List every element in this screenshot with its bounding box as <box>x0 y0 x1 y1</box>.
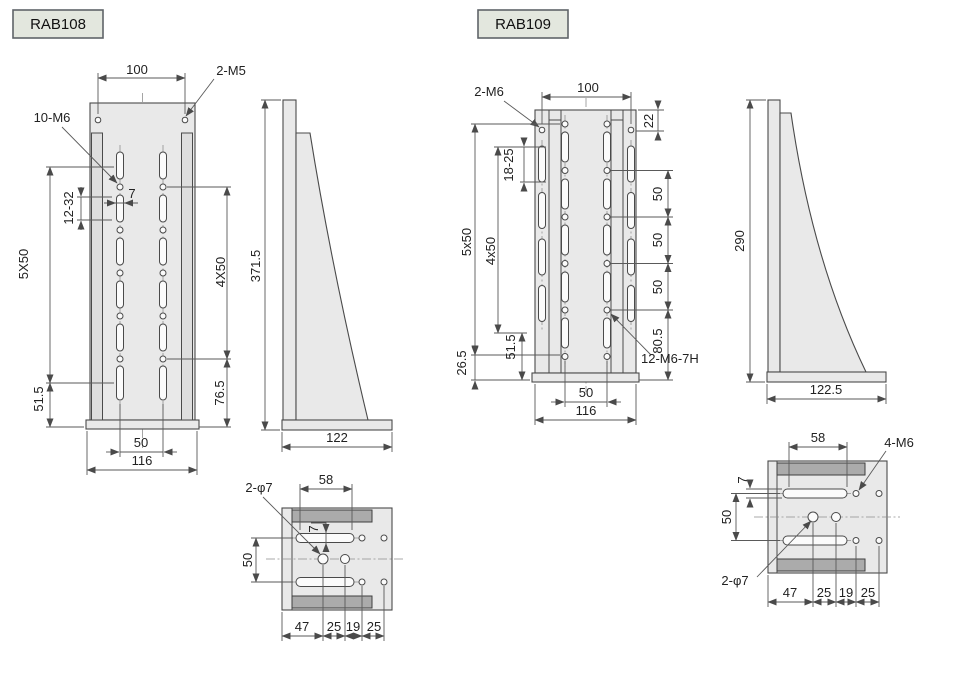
dim-47: 47 <box>295 619 309 634</box>
upright-section <box>777 463 865 475</box>
upright-plate <box>283 100 296 420</box>
dim-50: 50 <box>719 510 734 524</box>
dim-51-5-group: 51.5 <box>503 333 522 380</box>
front-plate <box>535 110 636 373</box>
dim-122-5-group: 122.5 <box>767 382 886 404</box>
rab109-bottom-view: 58 4-M6 7 50 2-φ7 <box>719 430 914 607</box>
dim-100: 100 <box>126 62 148 77</box>
m6-hole <box>876 491 882 497</box>
hole <box>381 579 387 585</box>
dim-58: 58 <box>811 430 825 445</box>
gusset <box>780 113 866 372</box>
slot <box>783 489 847 498</box>
dim-80-5: 80.5 <box>650 328 665 353</box>
dim-51-5-group: 51.5 <box>31 383 84 427</box>
rab108-bottom-view: 58 2-φ7 7 50 <box>240 472 404 641</box>
callout-2-m5: 2-M5 <box>216 63 246 78</box>
part-label-text: RAB109 <box>495 16 551 33</box>
dim-50: 50 <box>650 280 665 294</box>
rab109-panel: RAB109 <box>454 10 914 607</box>
upright-section <box>292 510 372 522</box>
dim-19: 19 <box>839 585 853 600</box>
dim-50: 50 <box>134 435 148 450</box>
callout-2-phi7: 2-φ7 <box>721 573 748 588</box>
dim-50: 50 <box>579 385 593 400</box>
gusset <box>296 133 368 420</box>
dim-76-5-group: 76.5 <box>199 359 231 427</box>
dim-25: 25 <box>367 619 381 634</box>
part-label-text: RAB108 <box>30 16 86 33</box>
rab108-side-view: 371.5 122 <box>248 100 392 452</box>
dim-25: 25 <box>861 585 875 600</box>
dim-4x50: 4X50 <box>213 257 228 287</box>
rab108-front-view: 100 2-M5 10-M6 12-32 7 <box>16 62 246 475</box>
dim-26-5: 26.5 <box>454 350 469 375</box>
m6-hole <box>853 491 859 497</box>
rab108-panel: RAB108 <box>13 10 404 641</box>
dim-22: 22 <box>641 114 656 128</box>
base-edge <box>86 420 199 429</box>
dim-50: 50 <box>650 187 665 201</box>
front-plate <box>90 103 195 420</box>
dim-290: 290 <box>732 230 747 252</box>
dim-7: 7 <box>306 525 321 532</box>
rib-section <box>777 559 865 571</box>
dim-51-5: 51.5 <box>31 386 46 411</box>
dim-19: 19 <box>346 619 360 634</box>
side-channel <box>182 133 193 420</box>
dim-116: 116 <box>132 453 153 468</box>
rab109-front-view: 2-M6 100 22 18-25 <box>454 80 699 425</box>
hole <box>359 579 365 585</box>
dim-371-5-group: 371.5 <box>248 100 281 430</box>
dim-58: 58 <box>319 472 333 487</box>
base-edge <box>532 373 639 382</box>
dim-12-32: 12-32 <box>61 191 76 224</box>
dim-50: 50 <box>240 553 255 567</box>
dim-7: 7 <box>735 476 750 483</box>
rab109-label: RAB109 <box>478 10 568 38</box>
slot <box>296 534 354 543</box>
hole <box>381 535 387 541</box>
catalog-drawing-page: RAB108 <box>0 0 953 678</box>
inner-left-column <box>562 121 569 360</box>
phi7-hole <box>808 512 818 522</box>
dim-22-group: 22 <box>636 101 664 140</box>
m6-hole <box>876 538 882 544</box>
dim-7: 7 <box>128 186 135 201</box>
dim-50: 50 <box>650 233 665 247</box>
dim-122-group: 122 <box>282 430 392 452</box>
dim-76-5: 76.5 <box>212 380 227 405</box>
rab109-side-view: 290 122.5 <box>732 100 886 404</box>
dim-371-5: 371.5 <box>248 250 263 283</box>
phi7-hole <box>318 554 328 564</box>
callout-12-m6-7h: 12-M6-7H <box>641 351 699 366</box>
side-channel <box>92 133 103 420</box>
dim-122: 122 <box>326 430 348 445</box>
callout-2-phi7: 2-φ7 <box>245 480 272 495</box>
rib-section <box>292 596 372 608</box>
m6-hole <box>853 538 859 544</box>
upright-plate <box>768 100 780 372</box>
dim-47: 47 <box>783 585 797 600</box>
dim-5x50: 5X50 <box>16 249 31 279</box>
dim-122-5: 122.5 <box>810 382 843 397</box>
base-plate <box>767 372 886 382</box>
dim-290-group: 290 <box>732 100 766 382</box>
callout-2-m6: 2-M6 <box>474 84 504 99</box>
dim-18-25: 18-25 <box>501 148 516 181</box>
hole <box>359 535 365 541</box>
callout-4-m6: 4-M6 <box>884 435 914 450</box>
dim-25: 25 <box>327 619 341 634</box>
dim-4x50: 4x50 <box>483 237 498 265</box>
rab108-label: RAB108 <box>13 10 103 38</box>
inner-right-column <box>604 121 611 360</box>
callout-2-m6-group: 2-M6 <box>474 84 539 127</box>
dim-100: 100 <box>577 80 599 95</box>
drawing-canvas: RAB108 <box>0 0 953 678</box>
callout-10-m6: 10-M6 <box>34 110 71 125</box>
dim-5x50: 5x50 <box>459 228 474 256</box>
dim-51-5: 51.5 <box>503 334 518 359</box>
base-plate <box>282 420 392 430</box>
dim-26-5-group: 26.5 <box>454 346 530 389</box>
phi7-hole <box>832 513 841 522</box>
dim-25: 25 <box>817 585 831 600</box>
dim-116: 116 <box>576 403 597 418</box>
phi7-hole <box>341 555 350 564</box>
